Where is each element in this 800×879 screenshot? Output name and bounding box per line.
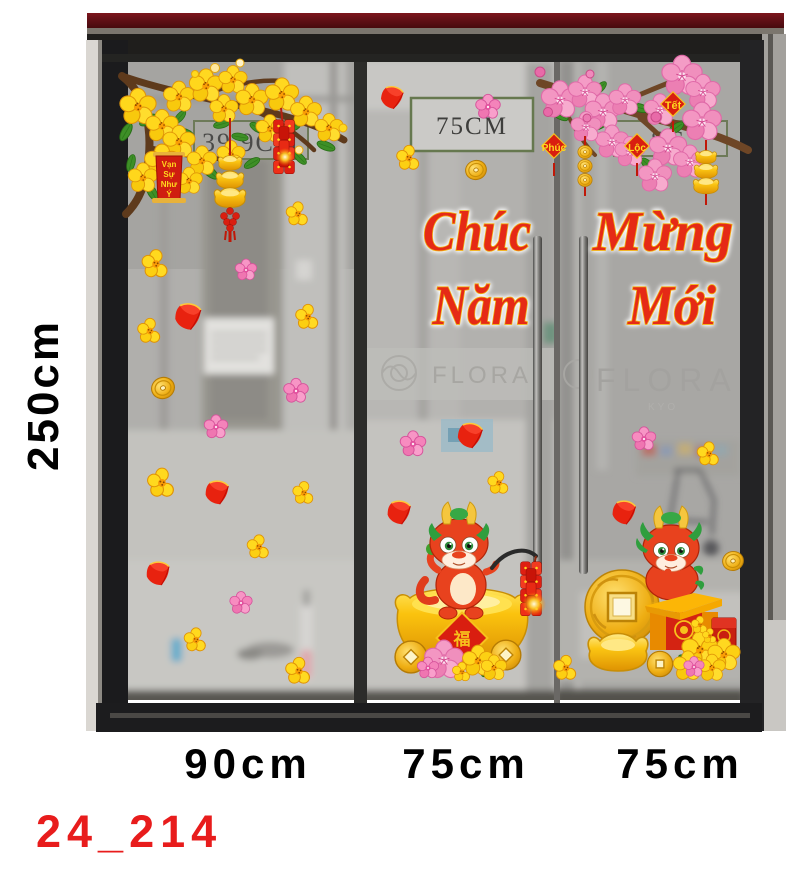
svg-text:Năm: Năm [432, 275, 530, 337]
svg-text:福: 福 [453, 629, 471, 649]
svg-text:Lộc: Lộc [628, 143, 646, 154]
svg-text:Mới: Mới [627, 275, 716, 337]
svg-text:250cm: 250cm [19, 319, 68, 471]
svg-text:90cm: 90cm [184, 740, 311, 787]
svg-text:Chúc: Chúc [423, 201, 531, 263]
svg-text:FLORA: FLORA [596, 362, 738, 398]
svg-text:KYO: KYO [648, 402, 678, 413]
svg-text:Ý: Ý [166, 190, 172, 199]
svg-text:Tết: Tết [665, 100, 682, 112]
svg-text:Vạn: Vạn [162, 160, 177, 169]
svg-text:75cm: 75cm [402, 740, 529, 787]
svg-text:FLORA: FLORA [432, 362, 532, 389]
svg-text:Mừng: Mừng [592, 201, 733, 263]
svg-text:Phúc: Phúc [542, 143, 567, 154]
svg-text:Sự: Sự [163, 170, 174, 179]
svg-text:24_214: 24_214 [36, 806, 222, 857]
svg-text:75CM: 75CM [436, 113, 508, 140]
svg-text:75cm: 75cm [616, 740, 743, 787]
svg-text:Như: Như [161, 180, 178, 189]
